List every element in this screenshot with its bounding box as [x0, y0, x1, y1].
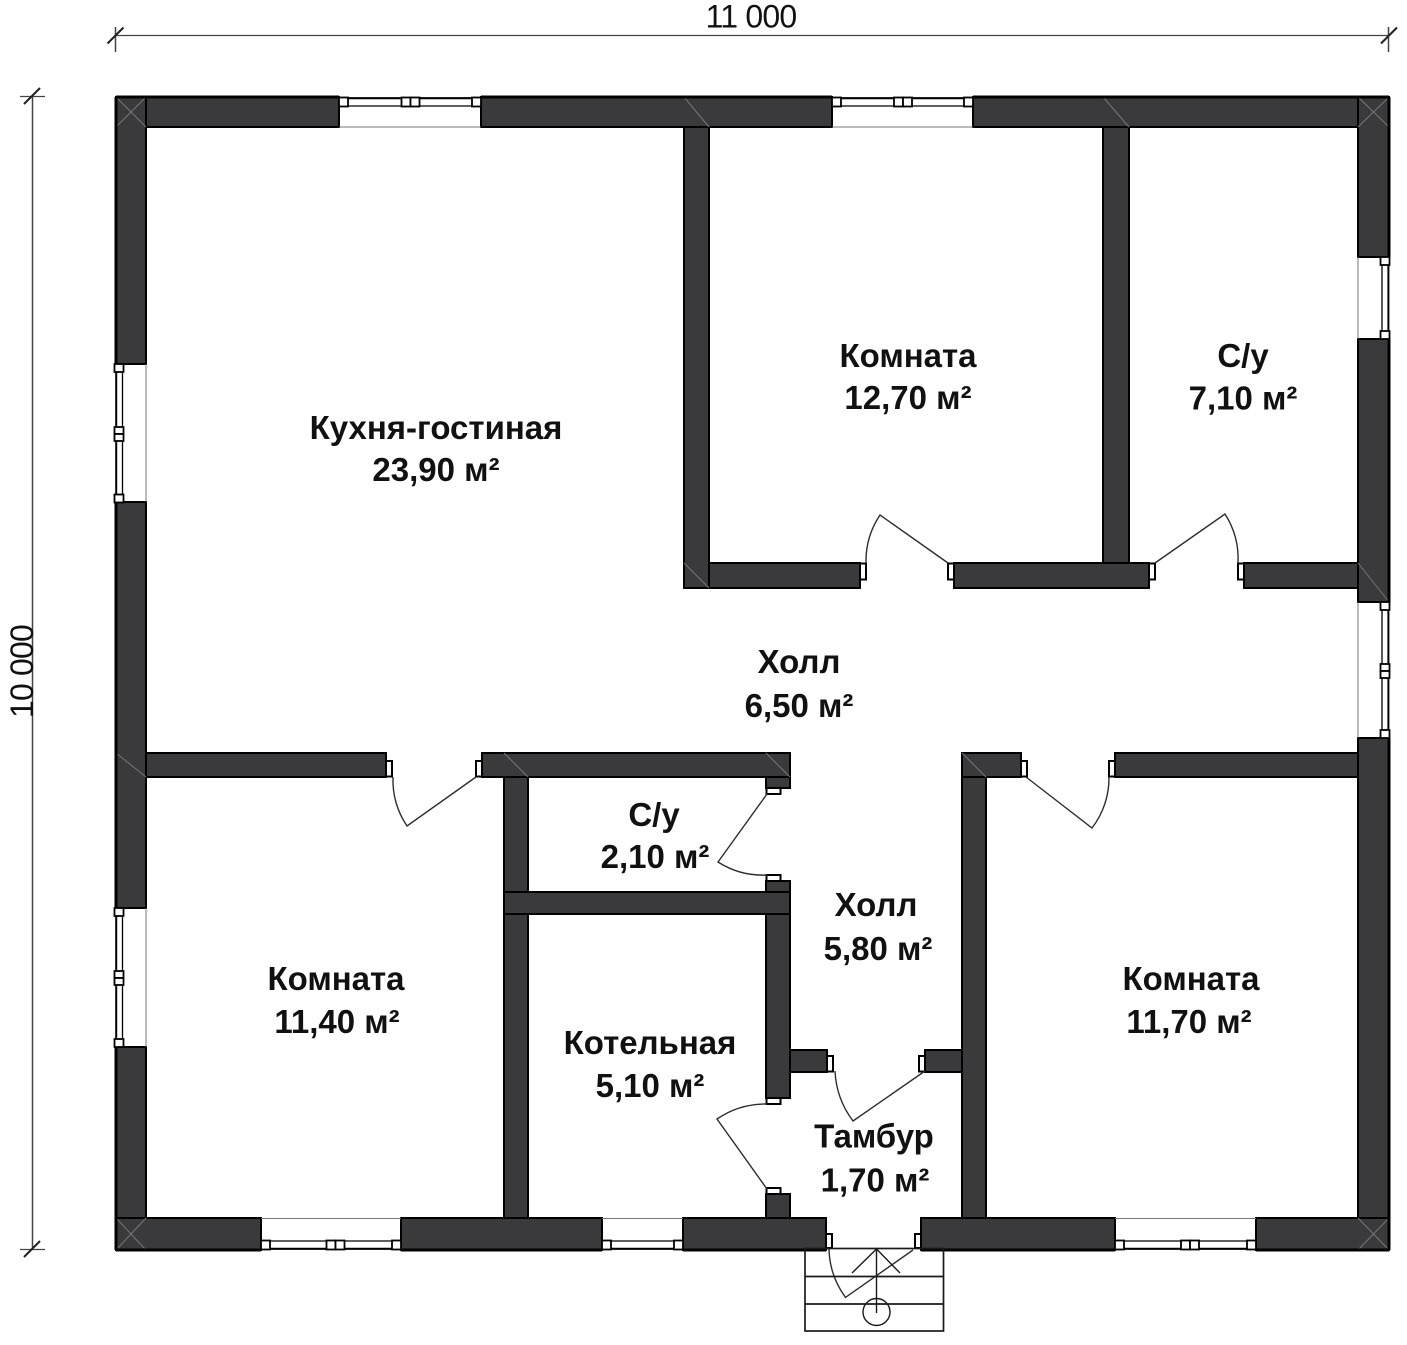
svg-text:12,70 м²: 12,70 м²	[844, 379, 971, 416]
svg-text:Холл: Холл	[758, 643, 841, 680]
svg-text:5,10 м²: 5,10 м²	[596, 1067, 705, 1104]
svg-text:2,10 м²: 2,10 м²	[601, 838, 710, 875]
svg-text:23,90 м²: 23,90 м²	[372, 451, 499, 488]
svg-text:11,70 м²: 11,70 м²	[1126, 1003, 1251, 1040]
svg-text:Комната: Комната	[1122, 960, 1260, 997]
svg-text:7,10 м²: 7,10 м²	[1189, 380, 1298, 417]
svg-text:Кухня-гостиная: Кухня-гостиная	[310, 409, 563, 446]
svg-text:С/у: С/у	[628, 796, 680, 833]
svg-text:10 000: 10 000	[4, 625, 40, 718]
svg-text:6,50 м²: 6,50 м²	[745, 687, 854, 724]
svg-text:С/у: С/у	[1217, 337, 1269, 374]
svg-text:5,80 м²: 5,80 м²	[824, 930, 933, 967]
svg-text:Тамбур: Тамбур	[814, 1118, 934, 1155]
svg-text:Холл: Холл	[835, 886, 918, 923]
svg-text:1,70 м²: 1,70 м²	[821, 1162, 930, 1199]
svg-text:11 000: 11 000	[706, 0, 797, 35]
svg-text:Комната: Комната	[839, 337, 977, 374]
svg-text:11,40 м²: 11,40 м²	[274, 1003, 399, 1040]
svg-text:Котельная: Котельная	[564, 1024, 737, 1061]
svg-text:Комната: Комната	[267, 960, 405, 997]
